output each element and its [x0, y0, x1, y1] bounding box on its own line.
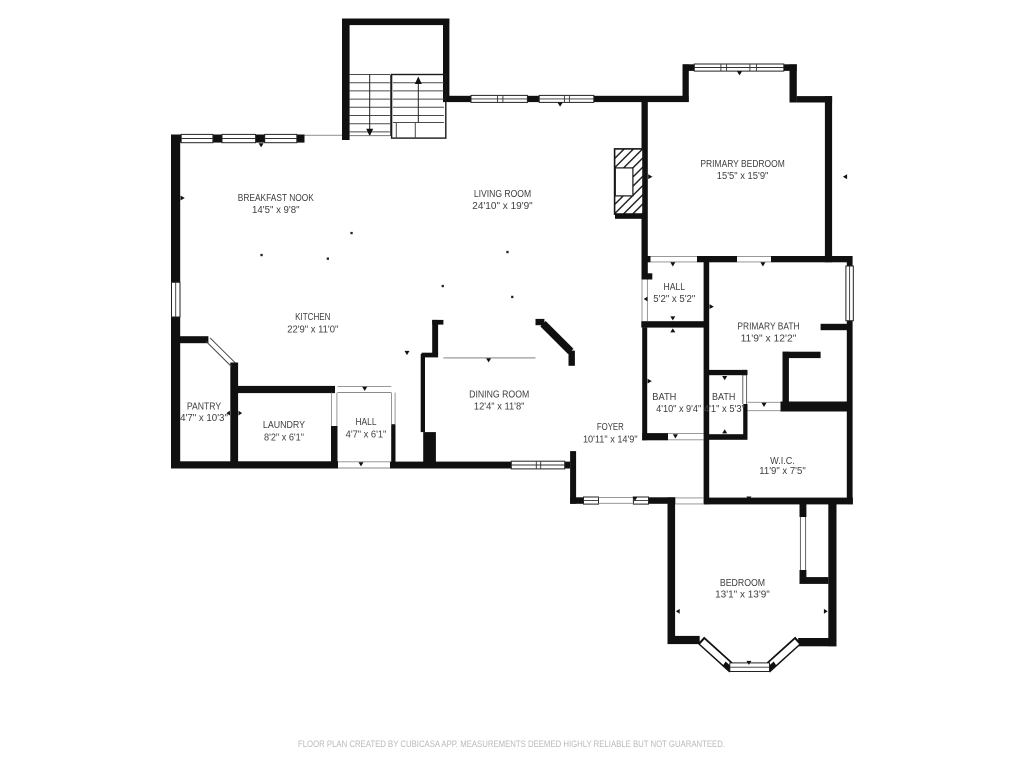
svg-text:10'11" x 14'9": 10'11" x 14'9" — [583, 434, 638, 445]
svg-text:PRIMARY BEDROOM: PRIMARY BEDROOM — [700, 159, 784, 170]
svg-text:5'2" x 5'2": 5'2" x 5'2" — [653, 294, 696, 305]
svg-text:4'1" x 5'3": 4'1" x 5'3" — [704, 404, 746, 415]
svg-text:8'2" x 6'1": 8'2" x 6'1" — [264, 432, 305, 443]
svg-text:4'7" x 6'1": 4'7" x 6'1" — [346, 429, 387, 440]
svg-text:4'7" x 10'3": 4'7" x 10'3" — [180, 413, 228, 424]
svg-text:14'5" x 9'8": 14'5" x 9'8" — [252, 205, 300, 216]
svg-text:DINING ROOM: DINING ROOM — [469, 389, 529, 400]
svg-text:11'9" x 7'5": 11'9" x 7'5" — [759, 466, 806, 477]
svg-text:HALL: HALL — [356, 417, 378, 428]
svg-text:22'9" x 11'0": 22'9" x 11'0" — [287, 325, 339, 336]
svg-text:4'10" x 9'4": 4'10" x 9'4" — [656, 404, 702, 415]
svg-text:BATH: BATH — [712, 392, 735, 403]
svg-text:BEDROOM: BEDROOM — [720, 578, 765, 589]
svg-text:11'9" x 12'2": 11'9" x 12'2" — [741, 334, 797, 345]
svg-text:FOYER: FOYER — [597, 422, 624, 433]
svg-text:PRIMARY BATH: PRIMARY BATH — [737, 321, 799, 332]
svg-text:15'5" x 15'9": 15'5" x 15'9" — [717, 171, 769, 182]
svg-text:24'10" x 19'9": 24'10" x 19'9" — [472, 201, 533, 212]
svg-text:BREAKFAST NOOK: BREAKFAST NOOK — [238, 193, 314, 204]
svg-text:LIVING ROOM: LIVING ROOM — [474, 189, 531, 200]
svg-text:PANTRY: PANTRY — [187, 402, 222, 413]
svg-text:BATH: BATH — [652, 392, 676, 403]
svg-text:LAUNDRY: LAUNDRY — [263, 420, 306, 431]
svg-text:KITCHEN: KITCHEN — [295, 312, 330, 323]
svg-text:FLOOR PLAN CREATED BY CUBICASA: FLOOR PLAN CREATED BY CUBICASA APP. MEAS… — [298, 739, 725, 749]
svg-text:13'1" x 13'9": 13'1" x 13'9" — [715, 590, 770, 601]
svg-text:12'4" x 11'8": 12'4" x 11'8" — [474, 402, 525, 413]
svg-text:HALL: HALL — [664, 282, 686, 293]
